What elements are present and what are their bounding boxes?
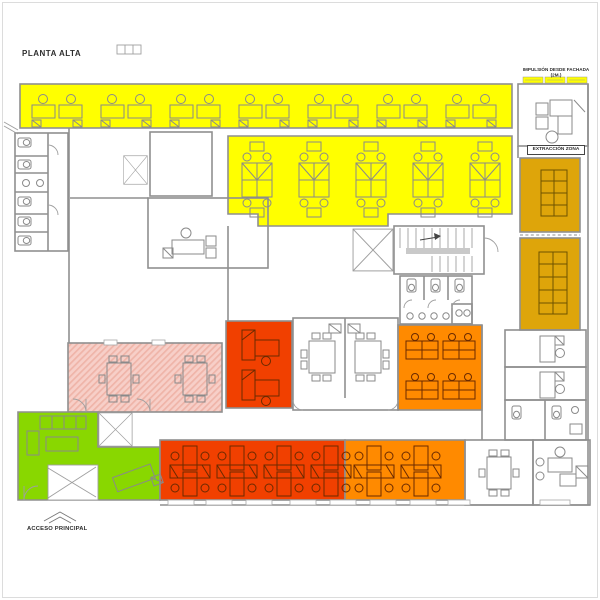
plan-title: PLANTA ALTA xyxy=(22,49,81,58)
zone-meeting-room-east-north xyxy=(520,158,580,232)
vent-mark xyxy=(117,45,141,54)
office-center-west-furniture xyxy=(163,228,216,258)
zone-open-office-orange-core xyxy=(398,325,482,410)
offices-east-furniture xyxy=(512,336,582,434)
toilets-center-fixtures xyxy=(407,279,470,319)
access-label: ACCESO PRINCIPAL xyxy=(27,526,87,532)
zones xyxy=(18,84,580,500)
staircase-main xyxy=(400,228,472,272)
zone-private-office-red xyxy=(226,321,292,408)
office-northeast-furniture xyxy=(536,100,585,143)
extraction-label: EXTRACCIÓN ZONA xyxy=(527,145,585,155)
elevator-icon xyxy=(99,413,132,446)
elevator-icon xyxy=(353,229,393,271)
zone-workstation-band-orange-south xyxy=(345,440,465,500)
office-southeast-furniture xyxy=(536,447,588,486)
staircase-reception xyxy=(48,465,98,500)
floor-plan-drawing xyxy=(0,0,600,600)
access-arrow-icon xyxy=(44,512,76,523)
elevator-icon xyxy=(124,156,148,185)
floor-plan: PLANTA ALTA IMPULSIÓN DESDE FACHADA (2M.… xyxy=(0,0,600,600)
zone-open-office-core xyxy=(228,136,512,226)
meeting-room-southeast-table xyxy=(479,450,519,496)
impulsion-label: IMPULSIÓN DESDE FACHADA (2M.) xyxy=(517,67,594,78)
